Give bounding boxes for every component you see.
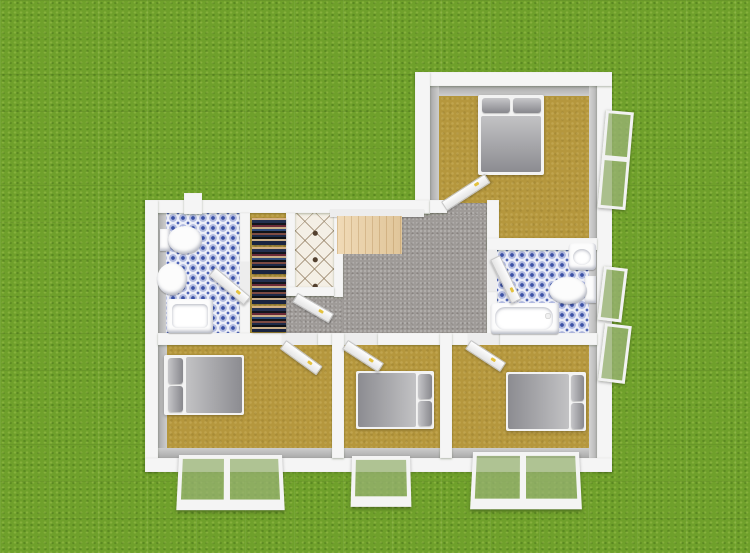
hall-right-floor[interactable] [499, 212, 597, 238]
door-handle [235, 290, 241, 296]
wall-bedroom-divider-right [440, 333, 452, 458]
wall-main-west [145, 200, 158, 472]
window-mullion [604, 155, 628, 162]
wall-bathroom-left-east-lower [240, 302, 250, 335]
blanket [508, 374, 569, 429]
window-mullion [224, 458, 230, 501]
pillow [168, 386, 183, 412]
wall-inner-face [589, 86, 597, 238]
bedroom-bottom-left-south-window[interactable] [176, 455, 284, 510]
wall-bedroom-divider-left [332, 333, 344, 458]
door-handle [318, 309, 324, 314]
wall-entry-hall-west [286, 213, 295, 296]
bedroom-bottom-right-south-window[interactable] [470, 452, 582, 509]
washbasin-bowl [573, 249, 591, 265]
blanket [358, 373, 416, 427]
pillow [571, 375, 584, 401]
wall-bathroom-left-east-upper [240, 213, 250, 262]
bathtub-faucet [545, 313, 551, 319]
bathroom-right-east-window[interactable] [597, 266, 627, 323]
wood-area-rug[interactable] [337, 216, 402, 254]
pillow [513, 98, 541, 113]
bedroom-bottom-middle-south-window[interactable] [351, 456, 412, 507]
wall-inner-face [589, 345, 597, 458]
toilet[interactable] [549, 277, 587, 304]
toilet[interactable] [168, 226, 202, 254]
pedestal-sink[interactable] [157, 263, 187, 295]
clothes-stack[interactable] [252, 218, 286, 245]
door-handle [509, 287, 514, 293]
door-handle [490, 357, 496, 362]
clothes-stack[interactable] [252, 247, 286, 274]
clothes-stack[interactable] [252, 306, 286, 332]
door-handle [368, 358, 374, 363]
wall-pillar [184, 193, 202, 214]
blanket [481, 116, 541, 172]
wall-interior-south-4 [500, 333, 597, 345]
blanket [186, 357, 242, 413]
wall-top-west [415, 72, 430, 214]
door-handle [307, 360, 313, 365]
grass-lawn [0, 0, 750, 553]
pillow [418, 401, 432, 426]
wall-inner-face [430, 86, 439, 212]
wall-interior-south-1 [158, 333, 282, 345]
shower-tub-basin [172, 304, 208, 328]
pillow [571, 403, 584, 429]
pillow [168, 358, 183, 384]
window-mullion [520, 455, 526, 500]
room-entry-hall-floor[interactable] [295, 213, 334, 287]
bedroom-bottom-right-east-window[interactable] [598, 323, 632, 384]
pillow [418, 374, 432, 399]
wall-interior-south-3 [378, 333, 468, 345]
wall-top-north [415, 72, 612, 86]
door-handle [474, 182, 480, 187]
bathtub-basin [495, 307, 553, 330]
wall-entry-hall-south [286, 287, 334, 296]
pillow [482, 98, 510, 113]
clothes-stack[interactable] [252, 277, 286, 304]
